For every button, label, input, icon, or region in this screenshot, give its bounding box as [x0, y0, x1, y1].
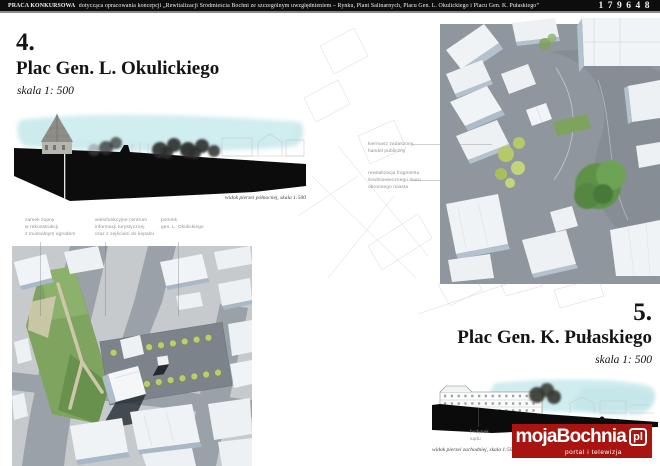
logo-tagline: portal i telewizja [565, 449, 622, 456]
logo-tld-badge: pl [629, 428, 647, 446]
section-5-number: 5. [532, 300, 652, 325]
section-5-title: Plac Gen. K. Pułaskiego [432, 328, 652, 347]
elevation-west-caption: widok pierzei zachodniej, skala 1:500 [432, 448, 522, 454]
competition-title: PRACA KONKURSOWA dotycząca opracowania k… [8, 3, 539, 9]
leader-line [40, 242, 41, 316]
leader-line [478, 408, 479, 427]
leader-line [178, 242, 179, 316]
annotation-info-centre: wielofunkcyjne centrum informacji turyst… [95, 217, 157, 239]
leader-line [105, 242, 106, 316]
competition-board: PRACA KONKURSOWA dotycząca opracowania k… [0, 0, 660, 466]
section-5-scale: skala 1: 500 [532, 355, 652, 367]
annotation-court-building: budynek sądu [470, 429, 510, 443]
annotation-monument: pomnik gen. L. Okulickiego [161, 217, 217, 231]
leader-line [410, 180, 502, 181]
site-plan-pulaskiego [298, 16, 660, 316]
logo-text: mojaBochnia [516, 427, 627, 446]
competition-title-rest: dotycząca opracowania koncepcji „Rewital… [79, 3, 539, 9]
annotation-castle: zamek żupny w rekonstrukcji z muzealnym … [25, 217, 87, 239]
elevation-north [14, 110, 306, 208]
elevation-north-caption: widok pierzei północnej, skala 1:500 [218, 196, 306, 202]
header-bar: PRACA KONKURSOWA dotycząca opracowania k… [0, 0, 660, 13]
section-4-title: Plac Gen. L. Okulickiego [16, 59, 219, 78]
site-plan-okulickiego [12, 246, 252, 466]
watermark-logo: mojaBochnia pl portal i telewizja [512, 424, 652, 458]
leader-line [412, 144, 492, 145]
section-4-number: 4. [16, 30, 35, 55]
logo-tld: pl [633, 431, 643, 443]
section-4-scale: skala 1: 500 [17, 86, 74, 98]
competition-title-prefix: PRACA KONKURSOWA [8, 3, 75, 9]
entry-number: 179648 [599, 1, 655, 11]
monument [157, 355, 169, 366]
